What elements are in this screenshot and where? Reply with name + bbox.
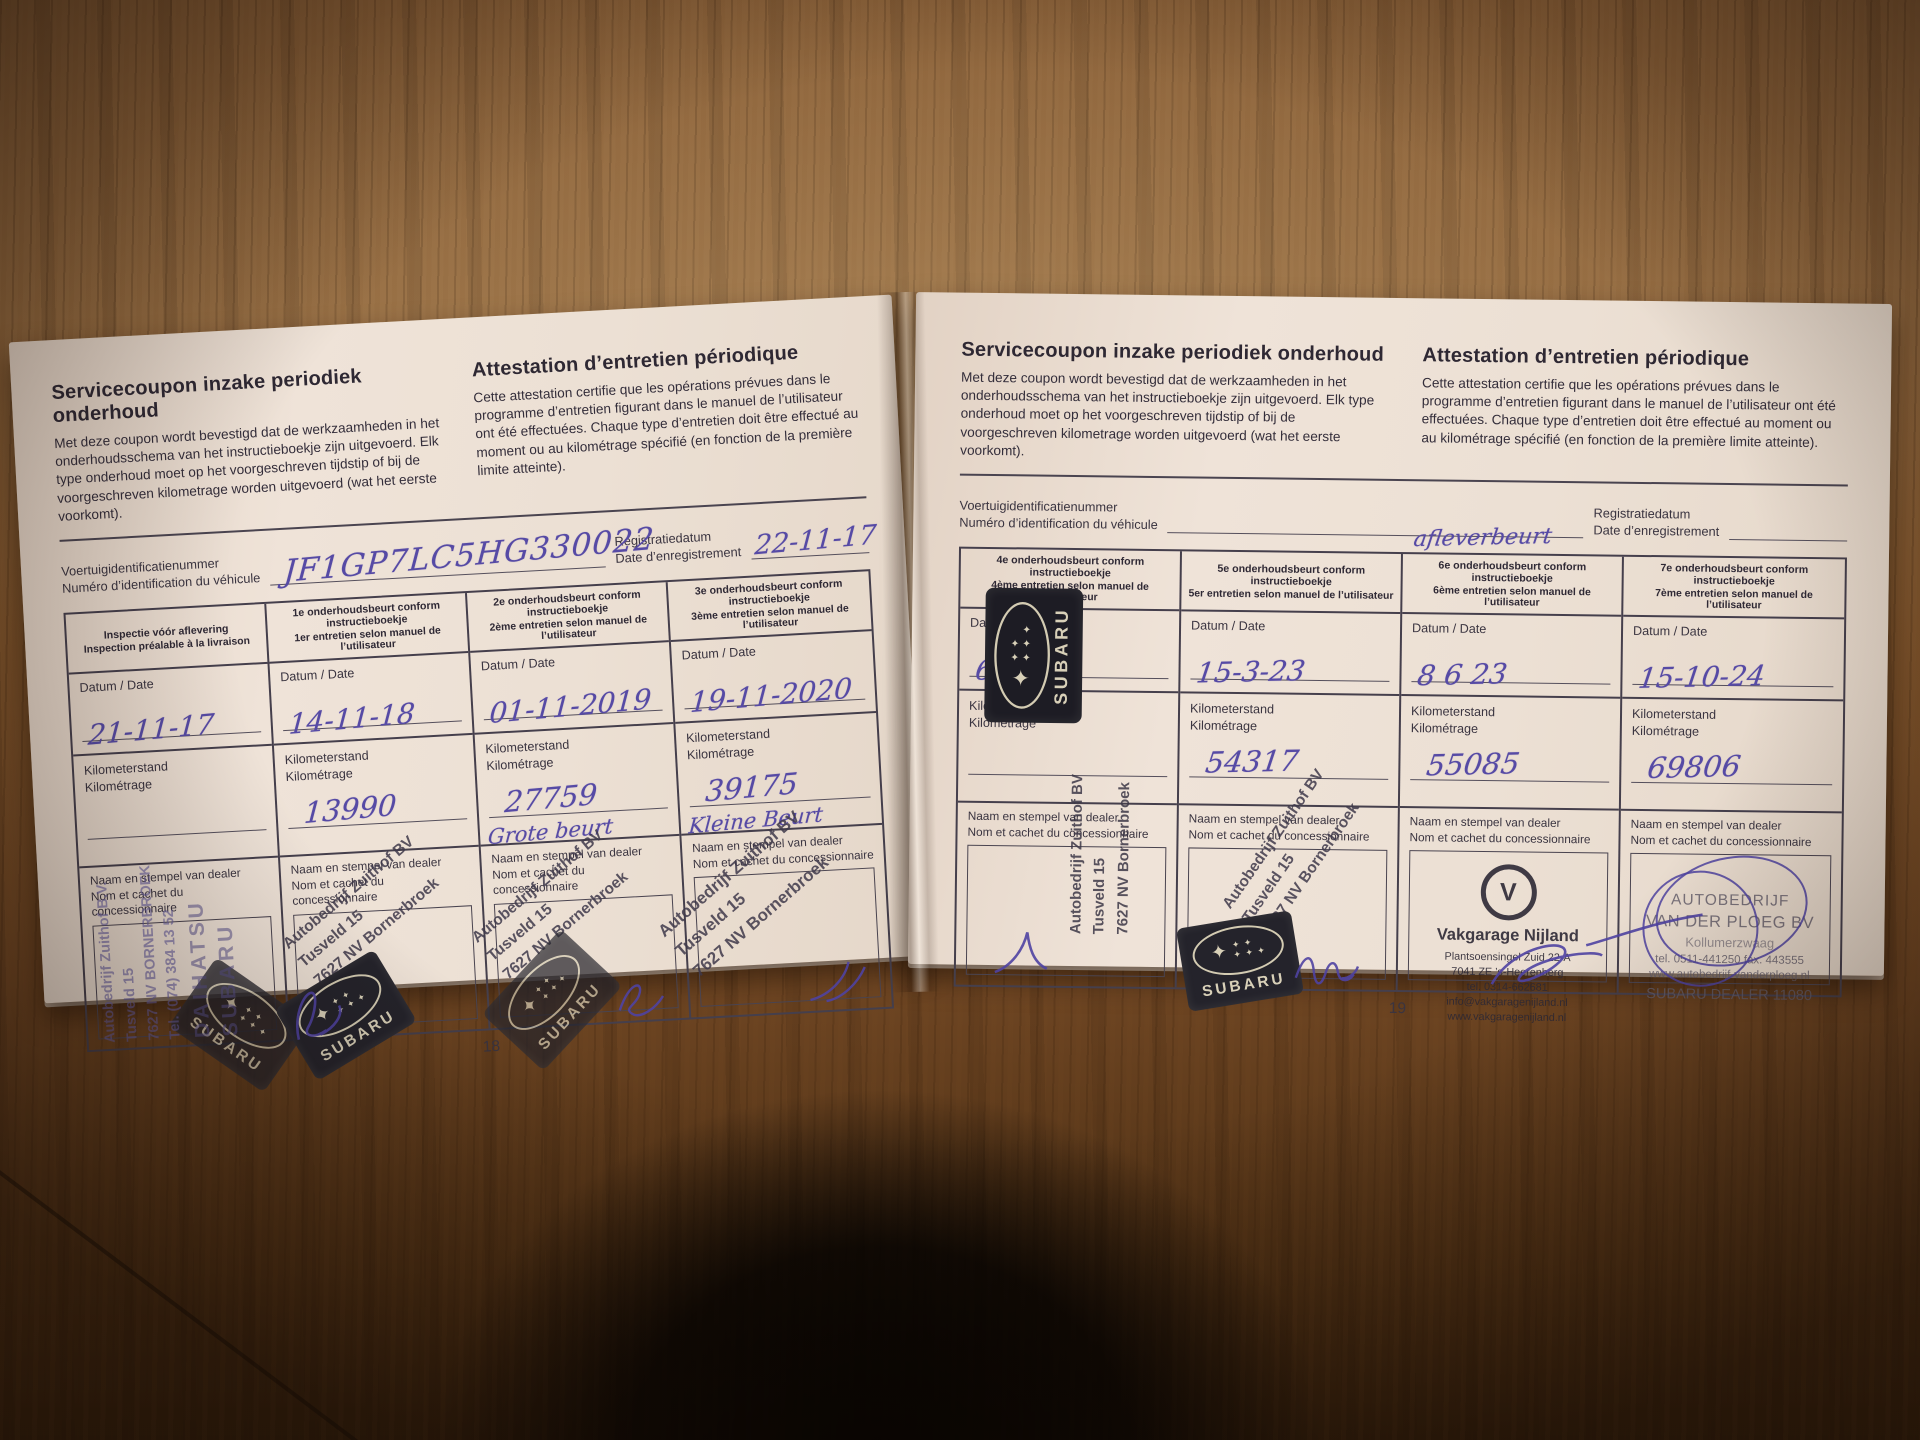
service-column-3: 3e onderhoudsbeurt conform instructieboe…: [668, 571, 892, 1017]
date-label: Datum / Date: [481, 656, 556, 674]
signature: [1584, 908, 1705, 953]
column-header: 6e onderhoudsbeurt conform instructieboe…: [1402, 554, 1622, 617]
signature: [610, 967, 683, 1027]
date-handwriting: 15-10-24: [1636, 659, 1767, 695]
reg-label-fr: Date d’enregistrement: [1593, 522, 1719, 540]
dealer-label-fr: Nom et cachet du concessionnaire: [967, 825, 1166, 843]
stamp-box: AUTOBEDRIJF VAN DER PLOEG BV Kollumerzwa…: [1629, 853, 1832, 985]
dealer-cell: Naam en stempel van dealer Nom et cachet…: [280, 847, 489, 1039]
date-label: Datum / Date: [681, 645, 756, 663]
column-header: 3e onderhoudsbeurt conform instructieboe…: [668, 571, 872, 642]
dealer-cell: Naam en stempel van dealer Nom et cachet…: [1177, 806, 1398, 991]
signature: [989, 922, 1060, 983]
service-column-7: 7e onderhoudsbeurt conform instructieboe…: [1619, 557, 1845, 996]
km-cell: Kilometerstand Kilométrage 39175 Kleine …: [675, 713, 882, 836]
subaru-stars-icon: ✦: [219, 993, 243, 1018]
km-cell: Kilometerstand Kilométrage 54317: [1179, 694, 1399, 809]
km-cell: Kilometerstand Kilométrage 27759 Grote b…: [475, 724, 680, 847]
stamp-box: Autobedrijf Zuithof BV Tusveld 15 7627 N…: [1187, 848, 1388, 980]
date-label: Datum / Date: [280, 666, 355, 684]
date-cell: Datum / Date 15-3-23: [1180, 612, 1400, 697]
date-handwriting: 21-11-17: [87, 708, 215, 752]
vin-labels: Voertuigidentificatienummer Numéro d’ide…: [959, 498, 1158, 534]
vin-label-fr: Numéro d’identification du véhicule: [959, 514, 1158, 533]
date-cell: Datum / Date 21-11-17: [69, 664, 272, 757]
service-column-inspection: Inspectie vóór aflevering Inspection pré…: [66, 604, 290, 1050]
stamp-box: V Vakgarage Nijland Plantsoensingel Zuid…: [1408, 851, 1609, 983]
column-header-nl: 6e onderhoudsbeurt conform instructieboe…: [1407, 559, 1618, 586]
date-cell: Datum / Date 19-11-2020: [671, 631, 876, 724]
column-header-fr: 5er entretien selon manuel de l’utilisat…: [1185, 588, 1396, 602]
subaru-stars-icon: ✦ ✦✦ ✦ ✦: [236, 1005, 274, 1040]
km-cell: Kilometerstand Kilométrage 69806: [1621, 699, 1843, 814]
wood-table-photo: Servicecoupon inzake periodiek onderhoud…: [0, 0, 1920, 1440]
header-title-nl: Servicecoupon inzake periodiek onderhoud: [961, 339, 1388, 367]
column-header: 7e onderhoudsbeurt conform instructieboe…: [1623, 557, 1845, 620]
km-handwriting: 13990: [303, 786, 398, 833]
stamp-line: www.vakgaragenijland.nl: [1414, 1009, 1599, 1026]
divider-rule: [960, 474, 1848, 487]
vin-row: Voertuigidentificatienummer Numéro d’ide…: [959, 498, 1847, 542]
reg-date-handwriting: 22-11-17: [754, 520, 878, 562]
date-label: Datum / Date: [1412, 621, 1486, 636]
subaru-stars-icon: ✦: [518, 994, 543, 1019]
km-label-fr: Kilométrage: [1190, 717, 1389, 736]
service-column-5: 5e onderhoudsbeurt conform instructieboe…: [1177, 552, 1403, 991]
km-handwriting: 55085: [1424, 744, 1522, 784]
booklet-page-left: Servicecoupon inzake periodiek onderhoud…: [9, 295, 928, 1004]
page-header: Servicecoupon inzake periodiek onderhoud…: [960, 339, 1849, 471]
stamp-box: ✦ ✦ ✦✦ ✦ ✦ SUBARU: [92, 916, 277, 1040]
km-handwriting: 69806: [1645, 747, 1743, 787]
subaru-stars-icon: ✦: [1210, 943, 1229, 964]
subaru-square-stamp: ✦ ✦ ✦✦ ✦ ✦ SUBARU: [1176, 911, 1304, 1013]
reg-labels: Registratiedatum Date d’enregistrement: [1593, 505, 1719, 540]
date-label: Datum / Date: [1191, 619, 1265, 634]
date-handwriting: 19-11-2020: [689, 672, 853, 720]
stamp-box: Autobedrijf Zuithof BV Tusveld 15 7627 N…: [694, 868, 882, 1007]
date-cell: Datum / Date 15-10-24: [1622, 617, 1844, 702]
reg-line: [1729, 507, 1847, 541]
afleverbeurt-handwriting: afleverbeurt: [1412, 524, 1554, 552]
km-label-fr: Kilométrage: [1411, 720, 1610, 739]
column-header-fr: 6ème entretien selon manuel de l’utilisa…: [1406, 585, 1617, 610]
km-handwriting: 54317: [1203, 742, 1301, 782]
header-title-fr: Attestation d’entretien périodique: [1422, 344, 1849, 372]
header-col-nl: Servicecoupon inzake periodiek onderhoud…: [960, 339, 1388, 465]
date-cell: Datum / Date 14-11-18: [270, 653, 473, 746]
write-line: [88, 829, 267, 840]
dealer-cell: Naam en stempel van dealer Nom et cachet…: [1619, 811, 1842, 996]
subaru-stamp-text: SUBARU: [1052, 607, 1074, 705]
column-header-nl: 7e onderhoudsbeurt conform instructieboe…: [1628, 562, 1841, 589]
column-header: Inspectie vóór aflevering Inspection pré…: [66, 604, 268, 675]
booklet-page-right: Servicecoupon inzake periodiek onderhoud…: [908, 292, 1892, 976]
subaru-stamp-text: SUBARU: [1201, 969, 1288, 1003]
service-column-4: 4e onderhoudsbeurt conform instructieboe…: [956, 549, 1182, 988]
stamp-box: [966, 845, 1167, 977]
service-column-2: 2e onderhoudsbeurt conform instructieboe…: [467, 582, 691, 1028]
subaru-square-stamp: ✦ ✦ ✦✦ ✦ ✦ SUBARU: [984, 588, 1083, 724]
service-column-1: 1e onderhoudsbeurt conform instructieboe…: [266, 593, 490, 1039]
dealer-label-fr: Nom et cachet du concessionnaire: [1630, 833, 1831, 851]
date-label: Datum / Date: [79, 677, 154, 695]
service-table-left: Inspectie vóór aflevering Inspection pré…: [63, 569, 894, 1052]
dealer-label-fr: Nom et cachet du concessionnaire: [1188, 827, 1387, 845]
vin-label-nl: Voertuigidentificatienummer: [959, 498, 1158, 517]
header-body-fr: Cette attestation certifie que les opéra…: [1421, 374, 1849, 452]
dealer-cell: Naam en stempel van dealer Nom et cachet…: [1398, 808, 1619, 993]
wood-plank-seam: [0, 1140, 375, 1440]
dealer-cell: Naam en stempel van dealer Nom et cachet…: [481, 836, 690, 1028]
subaru-logo-oval: ✦ ✦ ✦✦ ✦ ✦: [994, 602, 1051, 709]
reg-label-nl: Registratiedatum: [1593, 505, 1719, 523]
page-header: Servicecoupon inzake periodiek onderhoud…: [51, 338, 866, 526]
km-cell: Kilometerstand Kilométrage 13990: [274, 735, 479, 858]
subaru-stars-icon: ✦ ✦✦ ✦ ✦: [1231, 936, 1266, 961]
km-label-fr: Kilométrage: [1632, 723, 1833, 742]
subaru-stars-icon: ✦: [1011, 669, 1033, 688]
header-body-nl: Met deze coupon wordt bevestigd dat de w…: [54, 414, 445, 526]
stamp-line: SUBARU DEALER 11080: [1633, 985, 1824, 1006]
vin-line: JF1GP7LC5HG330022: [269, 535, 606, 586]
date-cell: Datum / Date 8 6 23: [1401, 614, 1621, 699]
column-header-nl: 4e onderhoudsbeurt conform instructieboe…: [965, 554, 1176, 581]
column-header-fr: 7ème entretien selon manuel de l’utilisa…: [1627, 588, 1840, 613]
header-body-nl: Met deze coupon wordt bevestigd dat de w…: [960, 369, 1388, 465]
subaru-stars-icon: ✦ ✦✦ ✦ ✦: [533, 966, 570, 1003]
photographer-shadow: [420, 1075, 1340, 1440]
km-cell: Kilometerstand Kilométrage: [73, 746, 278, 869]
stamp-box: Autobedrijf Zuithof BV Tusveld 15 7627 N…: [494, 894, 679, 1018]
date-handwriting: 8 6 23: [1415, 658, 1509, 693]
subaru-stars-icon: ✦ ✦✦ ✦ ✦: [1011, 624, 1034, 662]
service-table-right: afleverbeurt 4e onderhoudsbeurt conform …: [954, 547, 1847, 998]
signature: [284, 974, 378, 1049]
dealer-cell: Naam en stempel van dealer Nom et cachet…: [79, 858, 288, 1050]
signature: [804, 953, 881, 1013]
dealer-cell: Naam en stempel van dealer Nom et cachet…: [956, 803, 1177, 988]
header-col-fr: Attestation d’entretien périodique Cette…: [471, 338, 865, 503]
column-header: 5e onderhoudsbeurt conform instructieboe…: [1181, 552, 1401, 615]
vakgarage-logo-icon: V: [1480, 864, 1537, 921]
write-line: [968, 774, 1167, 777]
column-header: 2e onderhoudsbeurt conform instructieboe…: [467, 582, 669, 653]
header-col-fr: Attestation d’entretien périodique Cette…: [1421, 344, 1849, 470]
date-handwriting: 14-11-18: [288, 697, 416, 741]
date-handwriting: 01-11-2019: [488, 683, 652, 731]
date-label: Datum / Date: [1633, 624, 1707, 639]
column-header-nl: 5e onderhoudsbeurt conform instructieboe…: [1186, 562, 1397, 589]
signature: [1292, 938, 1373, 995]
vin-labels: Voertuigidentificatienummer Numéro d’ide…: [61, 553, 261, 597]
stamp-box: Autobedrijf Zuithof BV Tusveld 15 7627 N…: [293, 905, 478, 1029]
date-handwriting: 15-3-23: [1194, 654, 1307, 689]
dealer-label-fr: Nom et cachet du concessionnaire: [1409, 830, 1608, 848]
reg-line: 22-11-17: [750, 520, 870, 559]
header-body-fr: Cette attestation certifie que les opéra…: [473, 368, 864, 480]
date-cell: Datum / Date 01-11-2019: [470, 642, 673, 735]
vin-handwriting: JF1GP7LC5HG330022: [283, 521, 656, 590]
km-cell: Kilometerstand Kilométrage 55085: [1400, 696, 1620, 811]
column-header: 1e onderhoudsbeurt conform instructieboe…: [266, 593, 468, 664]
dealer-cell: Naam en stempel van dealer Nom et cachet…: [681, 825, 892, 1018]
header-col-nl: Servicecoupon inzake periodiek onderhoud…: [51, 361, 445, 526]
